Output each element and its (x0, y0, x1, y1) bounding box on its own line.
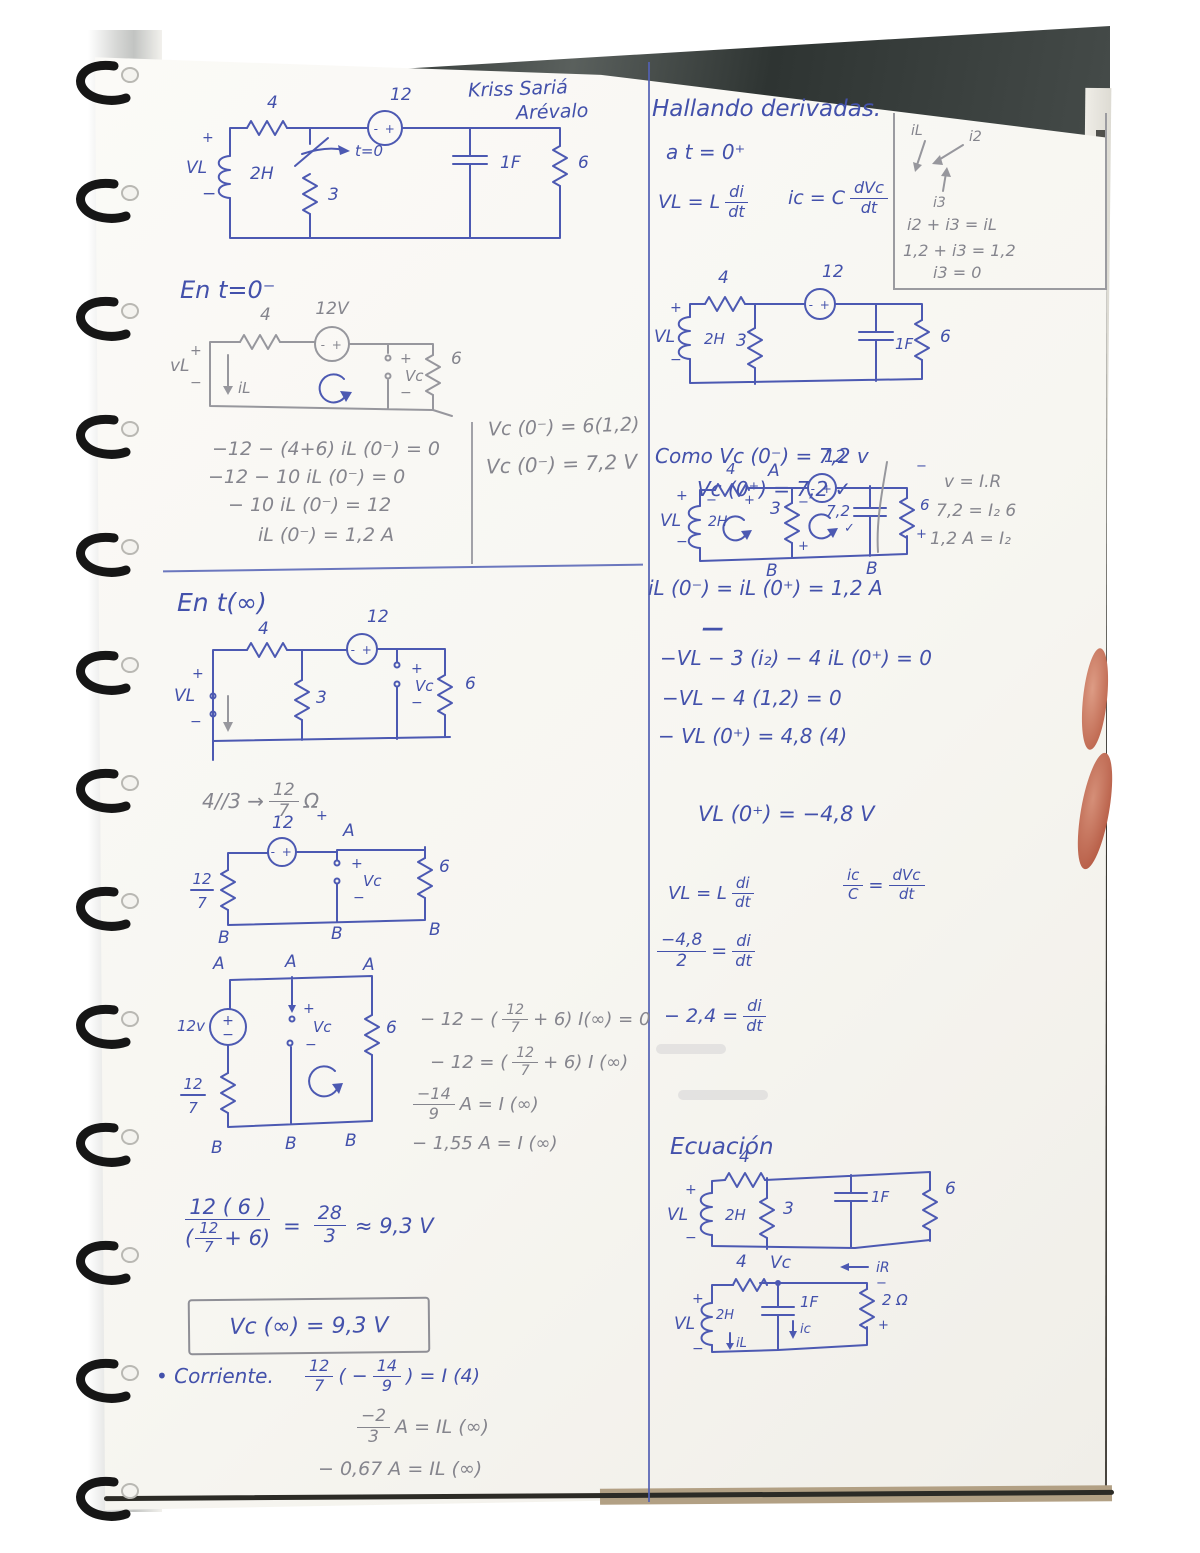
inductor-formula: VL = L didt (668, 876, 759, 911)
node-b-label: B (345, 1131, 357, 1151)
resistor-label: 3 (770, 499, 781, 519)
vl-label: VL (667, 1205, 688, 1225)
plus-sign: + (202, 130, 214, 146)
minus-sign: − (706, 493, 717, 508)
resistor-6 (426, 355, 440, 395)
minus-sign: − (190, 375, 202, 391)
capacitor-label: 1F (871, 1188, 890, 1206)
resistor-label: 4 (736, 1252, 747, 1272)
node-a-label: A (767, 461, 780, 481)
dash-mark: — (702, 616, 724, 641)
circuit-wires (191, 838, 432, 925)
source-minus: − (222, 1027, 234, 1043)
minus-sign: − (353, 890, 365, 906)
plus-sign: + (190, 343, 202, 359)
source-polarity: - + (271, 845, 294, 859)
equation-line: −12 − 10 iL (0⁻) = 0 (208, 466, 405, 488)
kvl-equation: −VL − 3 (i₂) − 4 iL (0⁺) = 0 (660, 646, 932, 670)
plus-sign: + (676, 488, 688, 504)
plus-sign: + (351, 856, 363, 872)
source-polarity: - + (811, 482, 834, 496)
big-fraction: 12 ( 6 ) ( 127 + 6) (185, 1196, 270, 1256)
resistor-label: 6 (451, 349, 462, 369)
circuit-switch-t0: 4 12 - + t=0 3 1F 6 2H + VL − (150, 86, 595, 254)
resistor-label: 6 (945, 1179, 956, 1199)
capacitor-label: 1F (895, 335, 914, 353)
circuit-final: 4 Vc iR − 2 Ω + 1F ic + VL − 2H iL (650, 1255, 950, 1370)
minus-sign: − (685, 1230, 697, 1246)
derivative-result: − 2,4 = didt (664, 998, 771, 1035)
resistor-label: 4 (739, 1147, 750, 1167)
resistor-3 (748, 328, 762, 368)
parallel-text: 4//3 → (202, 789, 264, 813)
ir-label: iR (876, 1260, 890, 1276)
vl-label: VL (674, 1314, 695, 1334)
circuit-wires (181, 976, 379, 1127)
resistor-4 (240, 335, 280, 349)
resistor-6 (365, 1015, 379, 1055)
plus-sign: + (303, 1001, 315, 1017)
resistor-label: 3 (316, 688, 327, 708)
vl-result: VL (0⁺) = −4,8 V (698, 802, 875, 826)
equation-line: − 1,55 A = I (∞) (412, 1133, 558, 1154)
plus-sign: + (400, 351, 412, 367)
plus-sign: + (316, 808, 328, 824)
minus-sign: − (411, 695, 423, 711)
node-a-label: A (284, 952, 297, 972)
resistor-label: 3 (783, 1199, 794, 1219)
resistor-3 (785, 503, 799, 543)
resistor-3 (760, 1198, 774, 1238)
boxed-result: Vc (∞) = 9,3 V (188, 1297, 431, 1356)
vc-label: Vc (415, 677, 434, 695)
resistor-4 (247, 643, 287, 657)
resistor-label: 6 (920, 496, 930, 514)
resistor-4 (733, 1279, 767, 1291)
source-polarity: - + (321, 338, 344, 352)
ohm-law-note: 1,2 A = I₂ (930, 529, 1011, 549)
resistor-12-7 (221, 1073, 235, 1113)
capacitor-formula: ic = C dVcdt (788, 180, 893, 217)
resistor-label: 4 (718, 268, 729, 288)
derivative-equation: −4,82 = didt (652, 932, 760, 971)
current-arrows-sketch: iL i2 i3 (901, 119, 1021, 209)
minus-sign: − (692, 1341, 704, 1357)
t0plus-label: a t = 0⁺ (666, 140, 745, 164)
source-polarity: - + (809, 298, 832, 312)
capacitor-label: 1F (800, 1293, 819, 1311)
source-value: 12 (390, 85, 412, 105)
circuit-source-12v: A A A 12v + − 12 7 + Vc − 6 B B B (175, 955, 425, 1160)
resistor-6 (900, 498, 914, 538)
fraction-den: 7 (197, 894, 207, 912)
kcl-equation: i2 + i3 = iL (907, 215, 997, 234)
inductor-formula: VL = L didt (658, 184, 753, 221)
resistor-label: 4 (258, 619, 269, 639)
minus-sign: − (670, 352, 682, 368)
node-b-label: B (218, 928, 230, 948)
resistor-12-7 (221, 870, 235, 910)
section-title-t0minus: En t=0⁻ (180, 276, 275, 304)
resistor-4 (705, 297, 745, 311)
resistor-label: 3 (328, 185, 339, 205)
capacitor-1f (762, 1307, 794, 1315)
il-continuity-line: iL (0⁻) = iL (0⁺) = 1,2 A (648, 576, 883, 600)
capacitor-1f (453, 156, 487, 164)
source-value: 12V (315, 299, 350, 319)
resistor-3 (295, 680, 309, 720)
capacitor-voltage: 7,2 (826, 502, 850, 520)
i3-label: i3 (933, 195, 946, 211)
plus-sign: + (411, 661, 423, 677)
circuit-thevenin-ab: 12 - + + A 12 7 + Vc − 6 B B B (185, 812, 470, 947)
kvl-equation: −VL − 4 (1,2) = 0 (662, 686, 842, 710)
resistor-label: 6 (386, 1018, 397, 1038)
il-label: iL (911, 123, 923, 139)
vc-terminal (395, 682, 400, 687)
plus-sign: + (685, 1182, 697, 1198)
capacitor (854, 508, 886, 516)
vc-label: Vc (363, 872, 382, 890)
inductor-label: 2H (708, 514, 728, 530)
resistor-label: 4 (726, 460, 736, 478)
inductor-label: 2H (704, 330, 725, 348)
source-value: 12v (177, 1017, 206, 1035)
fraction-den: 7 (188, 1099, 198, 1117)
vl-label: VL (660, 511, 681, 531)
spiral-binding (74, 44, 194, 1534)
resistor-6 (418, 858, 432, 898)
minus-sign: − (876, 1276, 887, 1291)
plus-sign: + (798, 539, 809, 554)
vc-terminal (395, 663, 400, 668)
corriente-label: • Corriente. (156, 1364, 274, 1388)
source-value: 12 (272, 813, 294, 833)
plus-sign: + (878, 1318, 889, 1333)
inductor-2h (689, 506, 700, 548)
equation-line: − 12 − ( 127 + 6) I(∞) = 0 (420, 1003, 650, 1035)
il-label: iL (736, 1336, 747, 1351)
vl-label: VL (174, 686, 195, 706)
vc-label: Vc (770, 1253, 792, 1273)
source-polarity: - + (351, 643, 374, 657)
il-label: iL (238, 379, 251, 397)
il-arrow (917, 141, 925, 165)
i2-label: i2 (969, 129, 982, 145)
voltage-divider-result: 12 ( 6 ) ( 127 + 6) = 283 ≈ 9,3 V (180, 1196, 434, 1256)
resistor-4 (725, 1173, 765, 1187)
plus-sign: + (744, 493, 755, 508)
pencil-smudge (656, 1044, 726, 1054)
circuit-redrawn: 4 12 - + + VL − 2H 3 1F 6 (650, 258, 960, 403)
source-value: 12 (367, 607, 389, 627)
resistor-label: 6 (465, 674, 476, 694)
vl-label: VL (654, 327, 675, 347)
inductor-2h (219, 156, 230, 198)
resistor-6 (915, 320, 929, 360)
minus-sign: − (916, 459, 927, 474)
resistor-label: 6 (439, 857, 450, 877)
resistor-label: 6 (578, 153, 589, 173)
equation-line: −12 − (4+6) iL (0⁻) = 0 (212, 438, 440, 460)
plus-sign: + (192, 666, 204, 682)
resistor-label: 6 (940, 327, 951, 347)
node-b-label: B (429, 920, 441, 940)
mesh-loop-arrow (309, 1066, 338, 1096)
vc-terminal (386, 356, 391, 361)
inductor-label: 2H (716, 1308, 734, 1323)
switch-arrow (302, 149, 344, 154)
vc-terminal (288, 1041, 293, 1046)
resistor-6 (923, 1190, 937, 1230)
vc-node-dot (775, 1280, 781, 1286)
circuit-t-infinity: 4 12 - + 3 + Vc − 6 + VL − (170, 610, 485, 780)
inductor-label: 2H (250, 164, 274, 184)
resistor-label: 4 (260, 305, 271, 325)
equation-result: iL (0⁻) = 1,2 A (258, 524, 394, 546)
vc-label: Vc (313, 1018, 332, 1036)
source-value: 12 (822, 262, 844, 282)
node-b-label: B (211, 1138, 223, 1158)
minus-sign: − (676, 534, 688, 550)
inductor-2h (702, 1303, 713, 1345)
capacitor-1f (859, 332, 893, 340)
kvl-equation: − VL (0⁺) = 4,8 (4) (658, 724, 847, 748)
equation-line: − 12 = ( 127 + 6) I (∞) (430, 1046, 628, 1078)
corriente-result: −23 A = IL (∞) (352, 1408, 489, 1447)
corriente-equation: 127 ( − 149 ) = I (4) (300, 1358, 480, 1395)
equation-line: − 10 iL (0⁻) = 12 (228, 494, 391, 516)
resistor-2ohm (860, 1289, 874, 1329)
node-a-label: A (342, 821, 355, 841)
fraction-num: 12 (183, 1075, 202, 1093)
minus-sign: − (400, 385, 412, 401)
vc-label: Vc (405, 367, 424, 385)
node-b-label: B (331, 924, 343, 944)
notebook-photo: Kriss Sariá Arévalo 4 12 - + t=0 3 1F 6 … (0, 0, 1200, 1553)
capacitor-formula: icC = dVcdt (838, 868, 930, 903)
inductor-label: 2H (725, 1206, 746, 1224)
vc-terminal (335, 879, 340, 884)
right-title: Hallando derivadas. (652, 96, 881, 122)
corriente-result: − 0,67 A = IL (∞) (318, 1458, 482, 1480)
vc-terminal (290, 1017, 295, 1022)
resistor-label: 3 (736, 331, 747, 351)
vc-terminal (386, 374, 391, 379)
fraction-num: 12 (192, 870, 211, 888)
pencil-smudge (678, 1090, 768, 1100)
plus-sign: + (916, 527, 927, 542)
capacitor-1f (835, 1193, 867, 1201)
equation-line: −149 A = I (∞) (408, 1086, 539, 1123)
minus-sign: − (190, 714, 202, 730)
resistor-label: 4 (267, 93, 278, 113)
inductor-2h (701, 1193, 712, 1235)
resistor-label: 2 Ω (882, 1291, 908, 1309)
ohm-law-note: v = I.R (944, 472, 1001, 492)
vl-label: vL (170, 356, 190, 376)
ic-label: ic (800, 1322, 811, 1337)
ohm-law-note: 7,2 = I₂ 6 (936, 501, 1016, 521)
node-a-label: A (212, 954, 225, 974)
resistor-3 (303, 174, 317, 214)
plus-sign: + (692, 1291, 704, 1307)
resistor-4 (247, 121, 287, 135)
source-polarity: - + (374, 122, 397, 136)
plus-sign: + (670, 300, 682, 316)
check-icon: ✓ (844, 521, 855, 536)
resistor-6 (438, 675, 452, 715)
source-value: 12 (824, 447, 846, 467)
circuit-t0-minus: 4 12V - + 6 + vL − iL + Vc − (160, 303, 465, 428)
mesh-loop-arrow (320, 374, 346, 402)
minus-sign: − (305, 1037, 317, 1053)
node-a-label: A (362, 955, 375, 975)
capacitor-label: 1F (500, 153, 521, 173)
vl-label: VL (186, 158, 207, 178)
pencil-divider-line (471, 422, 473, 564)
switch-label: t=0 (355, 142, 383, 160)
node-b-label: B (285, 1134, 297, 1154)
minus-sign: − (798, 495, 809, 510)
resistor-6 (553, 146, 567, 186)
minus-sign: − (202, 184, 216, 204)
vc-terminal (335, 861, 340, 866)
circuit-t0-plus: 12 A 4 − + + VL − 2H 3 − + - + 7,2 ✓ 6 −… (648, 448, 980, 580)
